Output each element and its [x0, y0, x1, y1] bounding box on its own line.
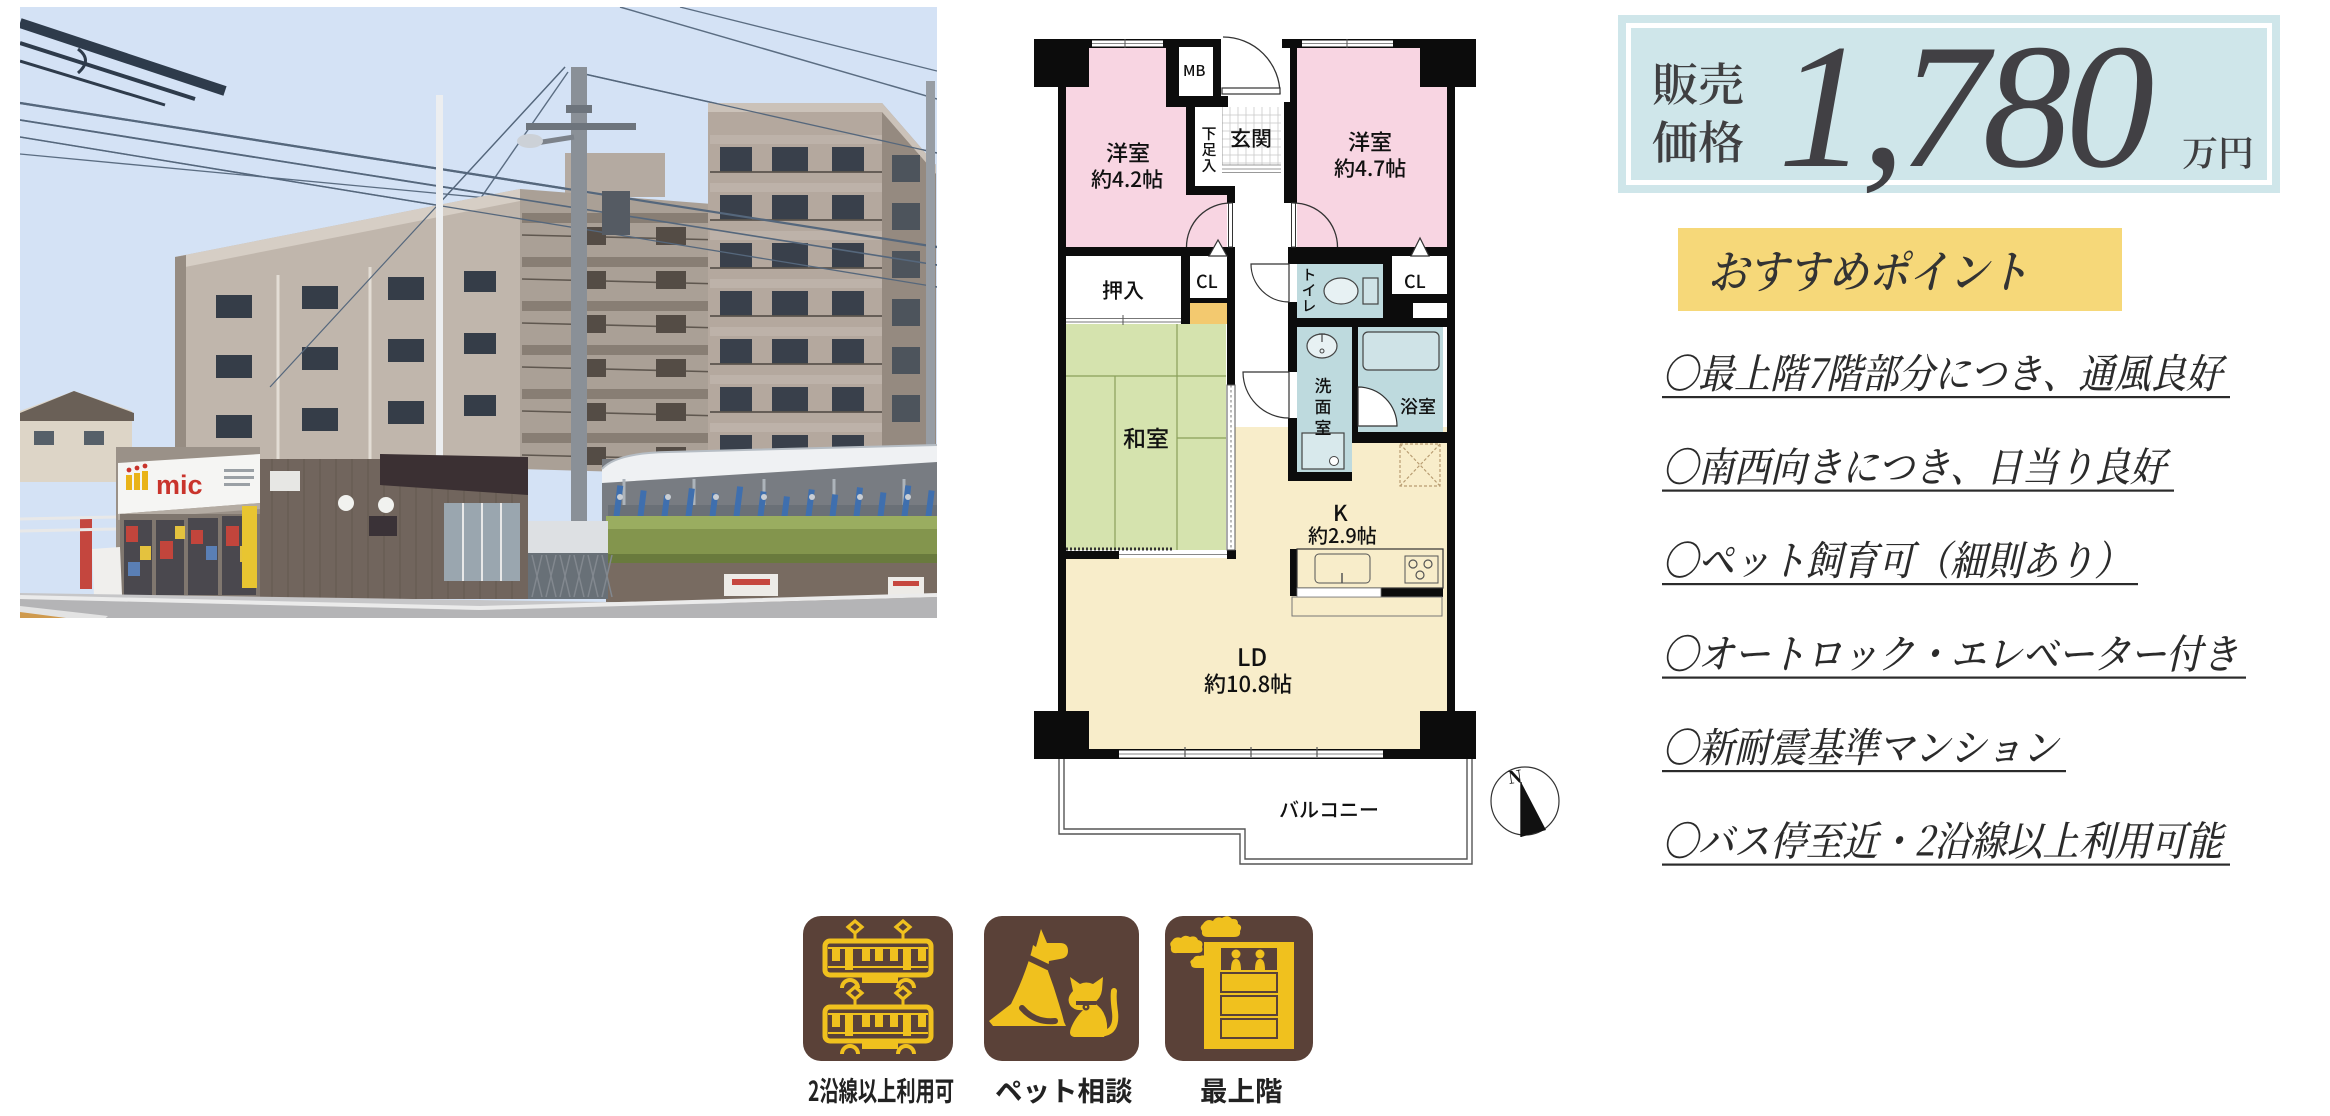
svg-text:mic: mic	[156, 470, 203, 500]
svg-text:1,780: 1,780	[1778, 15, 2153, 193]
